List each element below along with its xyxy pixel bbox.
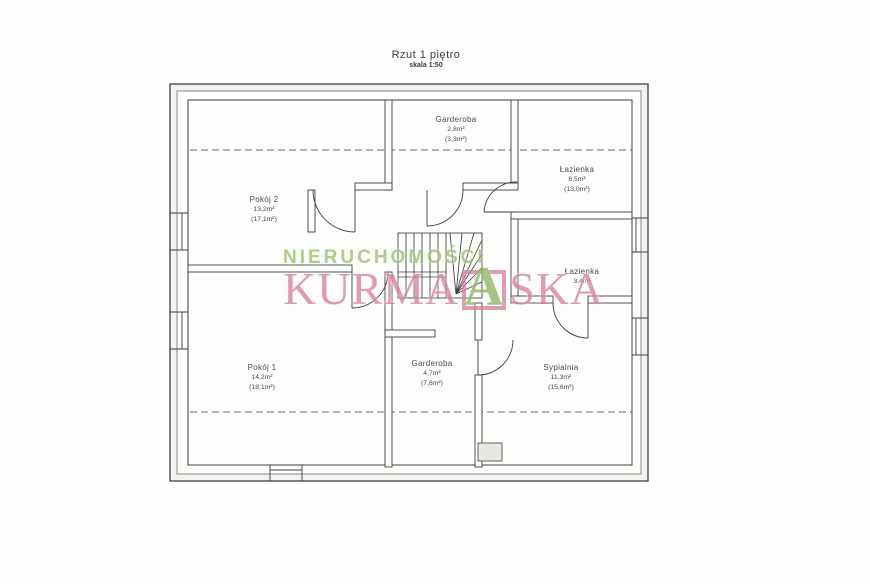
- room-area: 4,7m²: [412, 369, 453, 379]
- room-name: Pokój 1: [248, 362, 277, 373]
- room-area: 11,3m²: [543, 373, 578, 383]
- floor-plan-drawing: [0, 0, 870, 584]
- room-area-gross: (3,3m²): [436, 135, 477, 145]
- chimney-block: [478, 443, 502, 461]
- room-label-garderoba-top: Garderoba 2,8m² (3,3m²): [436, 114, 477, 144]
- room-name: Łazienka: [560, 164, 594, 175]
- room-area: 2,8m²: [436, 125, 477, 135]
- room-area-gross: (17,1m²): [250, 215, 279, 225]
- room-area-gross: (7,6m²): [412, 379, 453, 389]
- room-name: Garderoba: [412, 358, 453, 369]
- room-label-sypialnia: Sypialnia 11,3m² (15,6m²): [543, 362, 578, 392]
- room-name: Sypialnia: [543, 362, 578, 373]
- room-name: Pokój 2: [250, 194, 279, 205]
- floor-plan-page: Rzut 1 piętro skala 1:50: [0, 0, 870, 584]
- room-label-lazienka-small: Łazienka 3,4m²: [565, 266, 599, 287]
- room-area-gross: (13,0m²): [560, 185, 594, 195]
- room-label-pokoj-2: Pokój 2 13,2m² (17,1m²): [250, 194, 279, 224]
- room-area: 14,2m²: [248, 373, 277, 383]
- room-name: Garderoba: [436, 114, 477, 125]
- room-label-garderoba-bottom: Garderoba 4,7m² (7,6m²): [412, 358, 453, 388]
- room-area-gross: (15,6m²): [543, 383, 578, 393]
- room-label-pokoj-1: Pokój 1 14,2m² (18,1m²): [248, 362, 277, 392]
- room-area: 13,2m²: [250, 205, 279, 215]
- room-name: Łazienka: [565, 266, 599, 277]
- room-area: 3,4m²: [565, 277, 599, 287]
- room-area: 8,5m²: [560, 175, 594, 185]
- room-area-gross: (18,1m²): [248, 383, 277, 393]
- room-label-lazienka-top: Łazienka 8,5m² (13,0m²): [560, 164, 594, 194]
